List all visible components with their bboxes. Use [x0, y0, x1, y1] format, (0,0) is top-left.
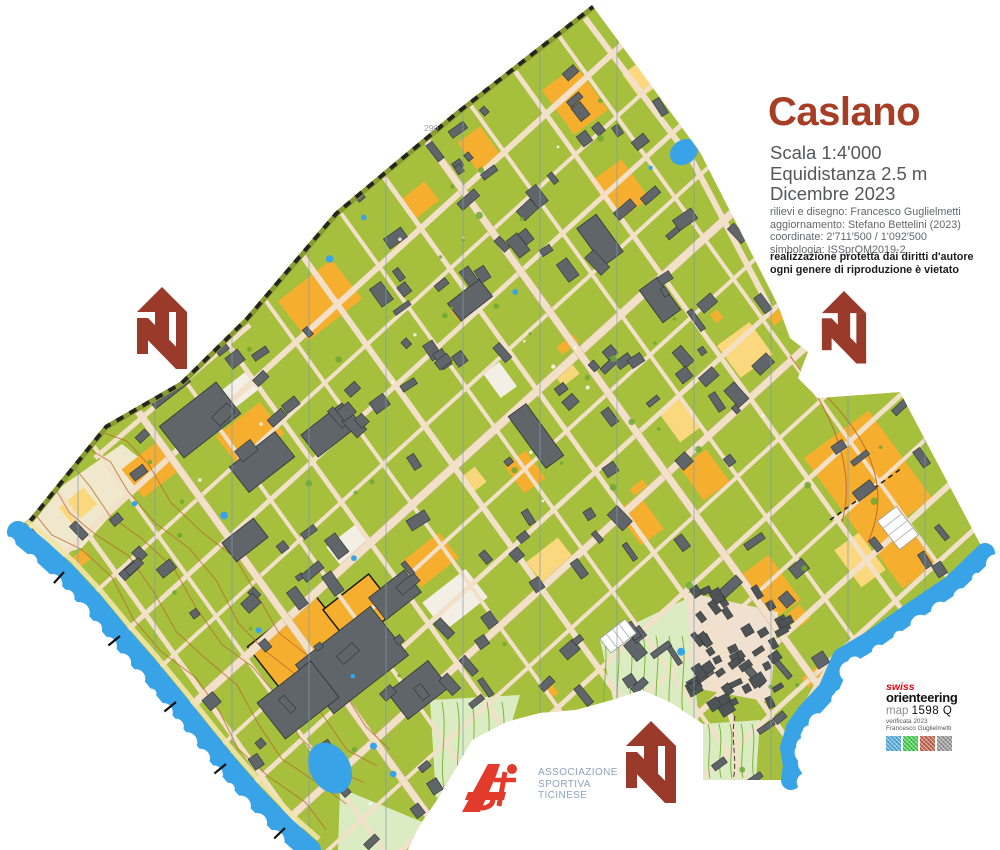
- swiss-logo-author: Francesco Guglielmetti: [886, 725, 1000, 732]
- map-info-block: Scala 1:4'000 Equidistanza 2.5 m Dicembr…: [770, 143, 927, 205]
- asti-line: ASSOCIAZIONE: [538, 767, 618, 779]
- caslano-map-sheet: 290 Caslano Scala 1:4'000 Equidistanza 2…: [0, 0, 1000, 850]
- page-title: Caslano: [768, 92, 920, 132]
- map-date: Dicembre 2023: [770, 184, 927, 205]
- asti-logo-icon: [460, 760, 524, 818]
- north-arrow-icon: [819, 291, 869, 367]
- legend-swatch: [937, 736, 952, 751]
- swiss-logo-brand-bottom: orienteering: [886, 692, 1000, 704]
- asti-logo-text: ASSOCIAZIONE SPORTIVA TICINESE: [538, 767, 618, 802]
- credit-line: aggiornamento: Stefano Bettelini (2023): [770, 219, 961, 232]
- asti-line: TICINESE: [538, 790, 618, 802]
- legend-swatch: [903, 736, 918, 751]
- credit-line: coordinate: 2'711'500 / 1'092'500: [770, 231, 961, 244]
- elevation-label: 290: [424, 123, 438, 133]
- credit-line: rilievi e disegno: Francesco Guglielmett…: [770, 206, 961, 219]
- north-arrow-icon: [626, 721, 676, 807]
- legend-swatch: [920, 736, 935, 751]
- legend-swatch: [886, 736, 901, 751]
- copyright-line: realizzazione protetta dai diritti d'aut…: [770, 251, 974, 264]
- map-scale: Scala 1:4'000: [770, 143, 927, 164]
- copyright-line: ogni genere di riproduzione è vietato: [770, 264, 974, 277]
- swiss-orienteering-logo: swiss orienteering map 1598 Q verificata…: [886, 683, 1000, 751]
- north-arrow-icon: [137, 287, 187, 373]
- legend-color-swatches: [886, 736, 1000, 751]
- map-equidistance: Equidistanza 2.5 m: [770, 164, 927, 185]
- swiss-logo-map-number: map 1598 Q: [886, 705, 1000, 718]
- swiss-logo-verified: verificata 2023: [886, 718, 1000, 725]
- copyright-block: realizzazione protetta dai diritti d'aut…: [770, 251, 974, 277]
- credits-block: rilievi e disegno: Francesco Guglielmett…: [770, 206, 961, 256]
- asti-line: SPORTIVA: [538, 779, 618, 791]
